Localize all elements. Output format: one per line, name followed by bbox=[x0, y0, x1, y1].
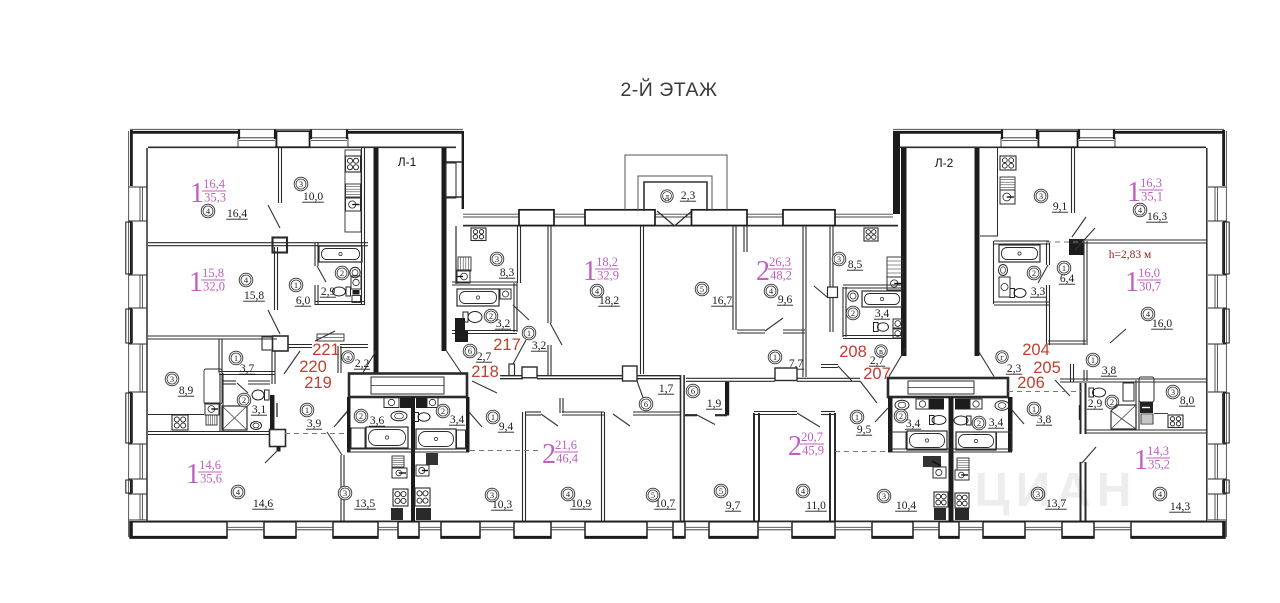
svg-text:3,4: 3,4 bbox=[450, 414, 465, 426]
svg-text:2: 2 bbox=[1032, 268, 1036, 278]
svg-text:8,3: 8,3 bbox=[500, 267, 515, 279]
svg-text:3,2: 3,2 bbox=[496, 318, 511, 330]
svg-text:2: 2 bbox=[489, 311, 493, 321]
svg-text:3: 3 bbox=[1171, 387, 1175, 397]
svg-text:1: 1 bbox=[1091, 355, 1095, 365]
svg-text:6,4: 6,4 bbox=[1060, 273, 1075, 285]
svg-text:1: 1 bbox=[1062, 263, 1066, 273]
svg-text:2,9: 2,9 bbox=[321, 286, 336, 298]
svg-text:45,9: 45,9 bbox=[802, 444, 824, 458]
svg-text:219: 219 bbox=[304, 374, 332, 392]
svg-text:218: 218 bbox=[471, 363, 499, 381]
svg-text:3,7: 3,7 bbox=[240, 363, 255, 375]
svg-text:16,7: 16,7 bbox=[712, 295, 732, 307]
svg-text:16,4: 16,4 bbox=[227, 208, 247, 220]
svg-text:2: 2 bbox=[242, 395, 246, 405]
svg-text:2,9: 2,9 bbox=[1088, 398, 1103, 410]
svg-text:2: 2 bbox=[851, 308, 855, 318]
svg-text:35,2: 35,2 bbox=[1148, 458, 1170, 472]
svg-text:2,3: 2,3 bbox=[1007, 363, 1022, 375]
svg-text:д: д bbox=[665, 191, 670, 201]
svg-text:26,3: 26,3 bbox=[769, 255, 791, 269]
svg-text:21,6: 21,6 bbox=[555, 438, 577, 452]
svg-text:14,6: 14,6 bbox=[253, 498, 273, 510]
svg-text:1: 1 bbox=[305, 405, 309, 415]
svg-text:1,7: 1,7 bbox=[659, 383, 674, 395]
svg-text:1: 1 bbox=[527, 328, 531, 338]
svg-text:2,2: 2,2 bbox=[355, 358, 370, 370]
svg-text:3,4: 3,4 bbox=[906, 418, 921, 430]
svg-text:16,0: 16,0 bbox=[1152, 318, 1172, 330]
svg-text:г: г bbox=[1000, 352, 1004, 362]
svg-text:46,4: 46,4 bbox=[556, 452, 579, 466]
svg-text:6: 6 bbox=[468, 346, 472, 356]
svg-text:32,0: 32,0 bbox=[203, 280, 225, 294]
svg-text:9,4: 9,4 bbox=[499, 421, 514, 433]
svg-text:3,3: 3,3 bbox=[1031, 286, 1046, 298]
svg-text:20,7: 20,7 bbox=[801, 430, 823, 444]
svg-text:9,5: 9,5 bbox=[857, 424, 872, 436]
svg-text:2-Й ЭТАЖ: 2-Й ЭТАЖ bbox=[620, 77, 717, 101]
svg-text:10,0: 10,0 bbox=[303, 191, 323, 203]
svg-text:207: 207 bbox=[863, 365, 891, 383]
svg-text:3: 3 bbox=[495, 254, 499, 264]
svg-text:30,7: 30,7 bbox=[1139, 280, 1161, 294]
svg-text:10,9: 10,9 bbox=[571, 498, 591, 510]
svg-text:3,4: 3,4 bbox=[875, 308, 890, 320]
svg-text:3: 3 bbox=[882, 491, 886, 501]
svg-text:10,3: 10,3 bbox=[492, 499, 512, 511]
svg-text:3: 3 bbox=[170, 374, 174, 384]
svg-text:1: 1 bbox=[583, 256, 597, 287]
svg-text:3,2: 3,2 bbox=[532, 340, 547, 352]
svg-text:16,3: 16,3 bbox=[1147, 211, 1167, 223]
svg-text:16,3: 16,3 bbox=[1140, 176, 1162, 190]
svg-text:217: 217 bbox=[493, 336, 521, 354]
svg-text:35,3: 35,3 bbox=[204, 191, 226, 205]
svg-text:1: 1 bbox=[1125, 267, 1139, 298]
svg-text:1: 1 bbox=[189, 267, 203, 298]
svg-text:9,6: 9,6 bbox=[778, 294, 793, 306]
svg-text:3,8: 3,8 bbox=[1037, 414, 1052, 426]
svg-text:1: 1 bbox=[234, 353, 238, 363]
svg-text:Л-1: Л-1 bbox=[398, 155, 417, 169]
svg-text:5: 5 bbox=[719, 486, 723, 496]
svg-text:3,6: 3,6 bbox=[370, 415, 385, 427]
svg-text:3: 3 bbox=[343, 488, 347, 498]
svg-text:2: 2 bbox=[977, 418, 981, 428]
svg-text:35,1: 35,1 bbox=[1141, 190, 1163, 204]
svg-text:2: 2 bbox=[788, 431, 802, 462]
svg-text:1: 1 bbox=[773, 352, 777, 362]
svg-text:204: 204 bbox=[1022, 341, 1050, 359]
svg-text:10,7: 10,7 bbox=[655, 498, 675, 510]
svg-text:1: 1 bbox=[294, 280, 298, 290]
svg-text:18,2: 18,2 bbox=[599, 295, 619, 307]
svg-text:5: 5 bbox=[700, 284, 704, 294]
svg-text:9,7: 9,7 bbox=[726, 500, 741, 512]
svg-text:32,9: 32,9 bbox=[597, 269, 619, 283]
svg-text:2: 2 bbox=[441, 406, 445, 416]
svg-text:2: 2 bbox=[899, 411, 903, 421]
svg-text:11,0: 11,0 bbox=[806, 500, 826, 512]
svg-text:16,0: 16,0 bbox=[1138, 266, 1160, 280]
svg-text:1: 1 bbox=[855, 412, 859, 422]
svg-text:208: 208 bbox=[839, 343, 867, 361]
svg-text:3,8: 3,8 bbox=[1102, 365, 1117, 377]
svg-text:206: 206 bbox=[1017, 374, 1045, 392]
svg-text:3,9: 3,9 bbox=[307, 418, 322, 430]
svg-text:1,9: 1,9 bbox=[707, 398, 722, 410]
svg-text:48,2: 48,2 bbox=[770, 269, 792, 283]
svg-text:2: 2 bbox=[359, 411, 363, 421]
svg-text:10,4: 10,4 bbox=[896, 500, 916, 512]
svg-text:8,9: 8,9 bbox=[179, 385, 194, 397]
svg-text:221: 221 bbox=[312, 341, 340, 359]
svg-text:6: 6 bbox=[691, 386, 695, 396]
svg-text:2: 2 bbox=[542, 439, 556, 470]
svg-text:а: а bbox=[346, 352, 350, 362]
svg-text:2,7: 2,7 bbox=[477, 351, 492, 363]
svg-text:8,5: 8,5 bbox=[848, 259, 863, 271]
svg-text:3,4: 3,4 bbox=[989, 417, 1004, 429]
svg-text:15,8: 15,8 bbox=[202, 266, 224, 280]
svg-text:1: 1 bbox=[1032, 404, 1036, 414]
svg-text:16,4: 16,4 bbox=[203, 177, 226, 191]
svg-text:15,8: 15,8 bbox=[244, 290, 264, 302]
svg-text:14,3: 14,3 bbox=[1147, 444, 1169, 458]
svg-text:Л-2: Л-2 bbox=[935, 156, 954, 170]
svg-text:2,3: 2,3 bbox=[681, 190, 696, 202]
svg-text:ЦИАН: ЦИАН bbox=[975, 464, 1138, 517]
svg-text:2: 2 bbox=[340, 268, 344, 278]
svg-text:35,6: 35,6 bbox=[200, 472, 222, 486]
svg-text:6: 6 bbox=[644, 399, 648, 409]
svg-text:6,0: 6,0 bbox=[296, 295, 311, 307]
svg-text:8,0: 8,0 bbox=[1180, 395, 1195, 407]
svg-text:1: 1 bbox=[186, 459, 200, 490]
svg-text:13,5: 13,5 bbox=[355, 498, 375, 510]
svg-text:3,1: 3,1 bbox=[252, 404, 267, 416]
svg-text:18,2: 18,2 bbox=[596, 255, 618, 269]
svg-text:2: 2 bbox=[1110, 397, 1114, 407]
svg-text:1: 1 bbox=[491, 412, 495, 422]
svg-text:3: 3 bbox=[1039, 191, 1043, 201]
svg-text:14,3: 14,3 bbox=[1170, 501, 1190, 513]
svg-text:9,1: 9,1 bbox=[1053, 201, 1068, 213]
svg-text:14,6: 14,6 bbox=[199, 458, 221, 472]
svg-text:3: 3 bbox=[299, 179, 303, 189]
svg-text:3: 3 bbox=[837, 254, 841, 264]
svg-text:1: 1 bbox=[190, 178, 204, 209]
svg-text:h=2,83 м: h=2,83 м bbox=[1109, 249, 1152, 261]
svg-text:2: 2 bbox=[756, 256, 770, 287]
